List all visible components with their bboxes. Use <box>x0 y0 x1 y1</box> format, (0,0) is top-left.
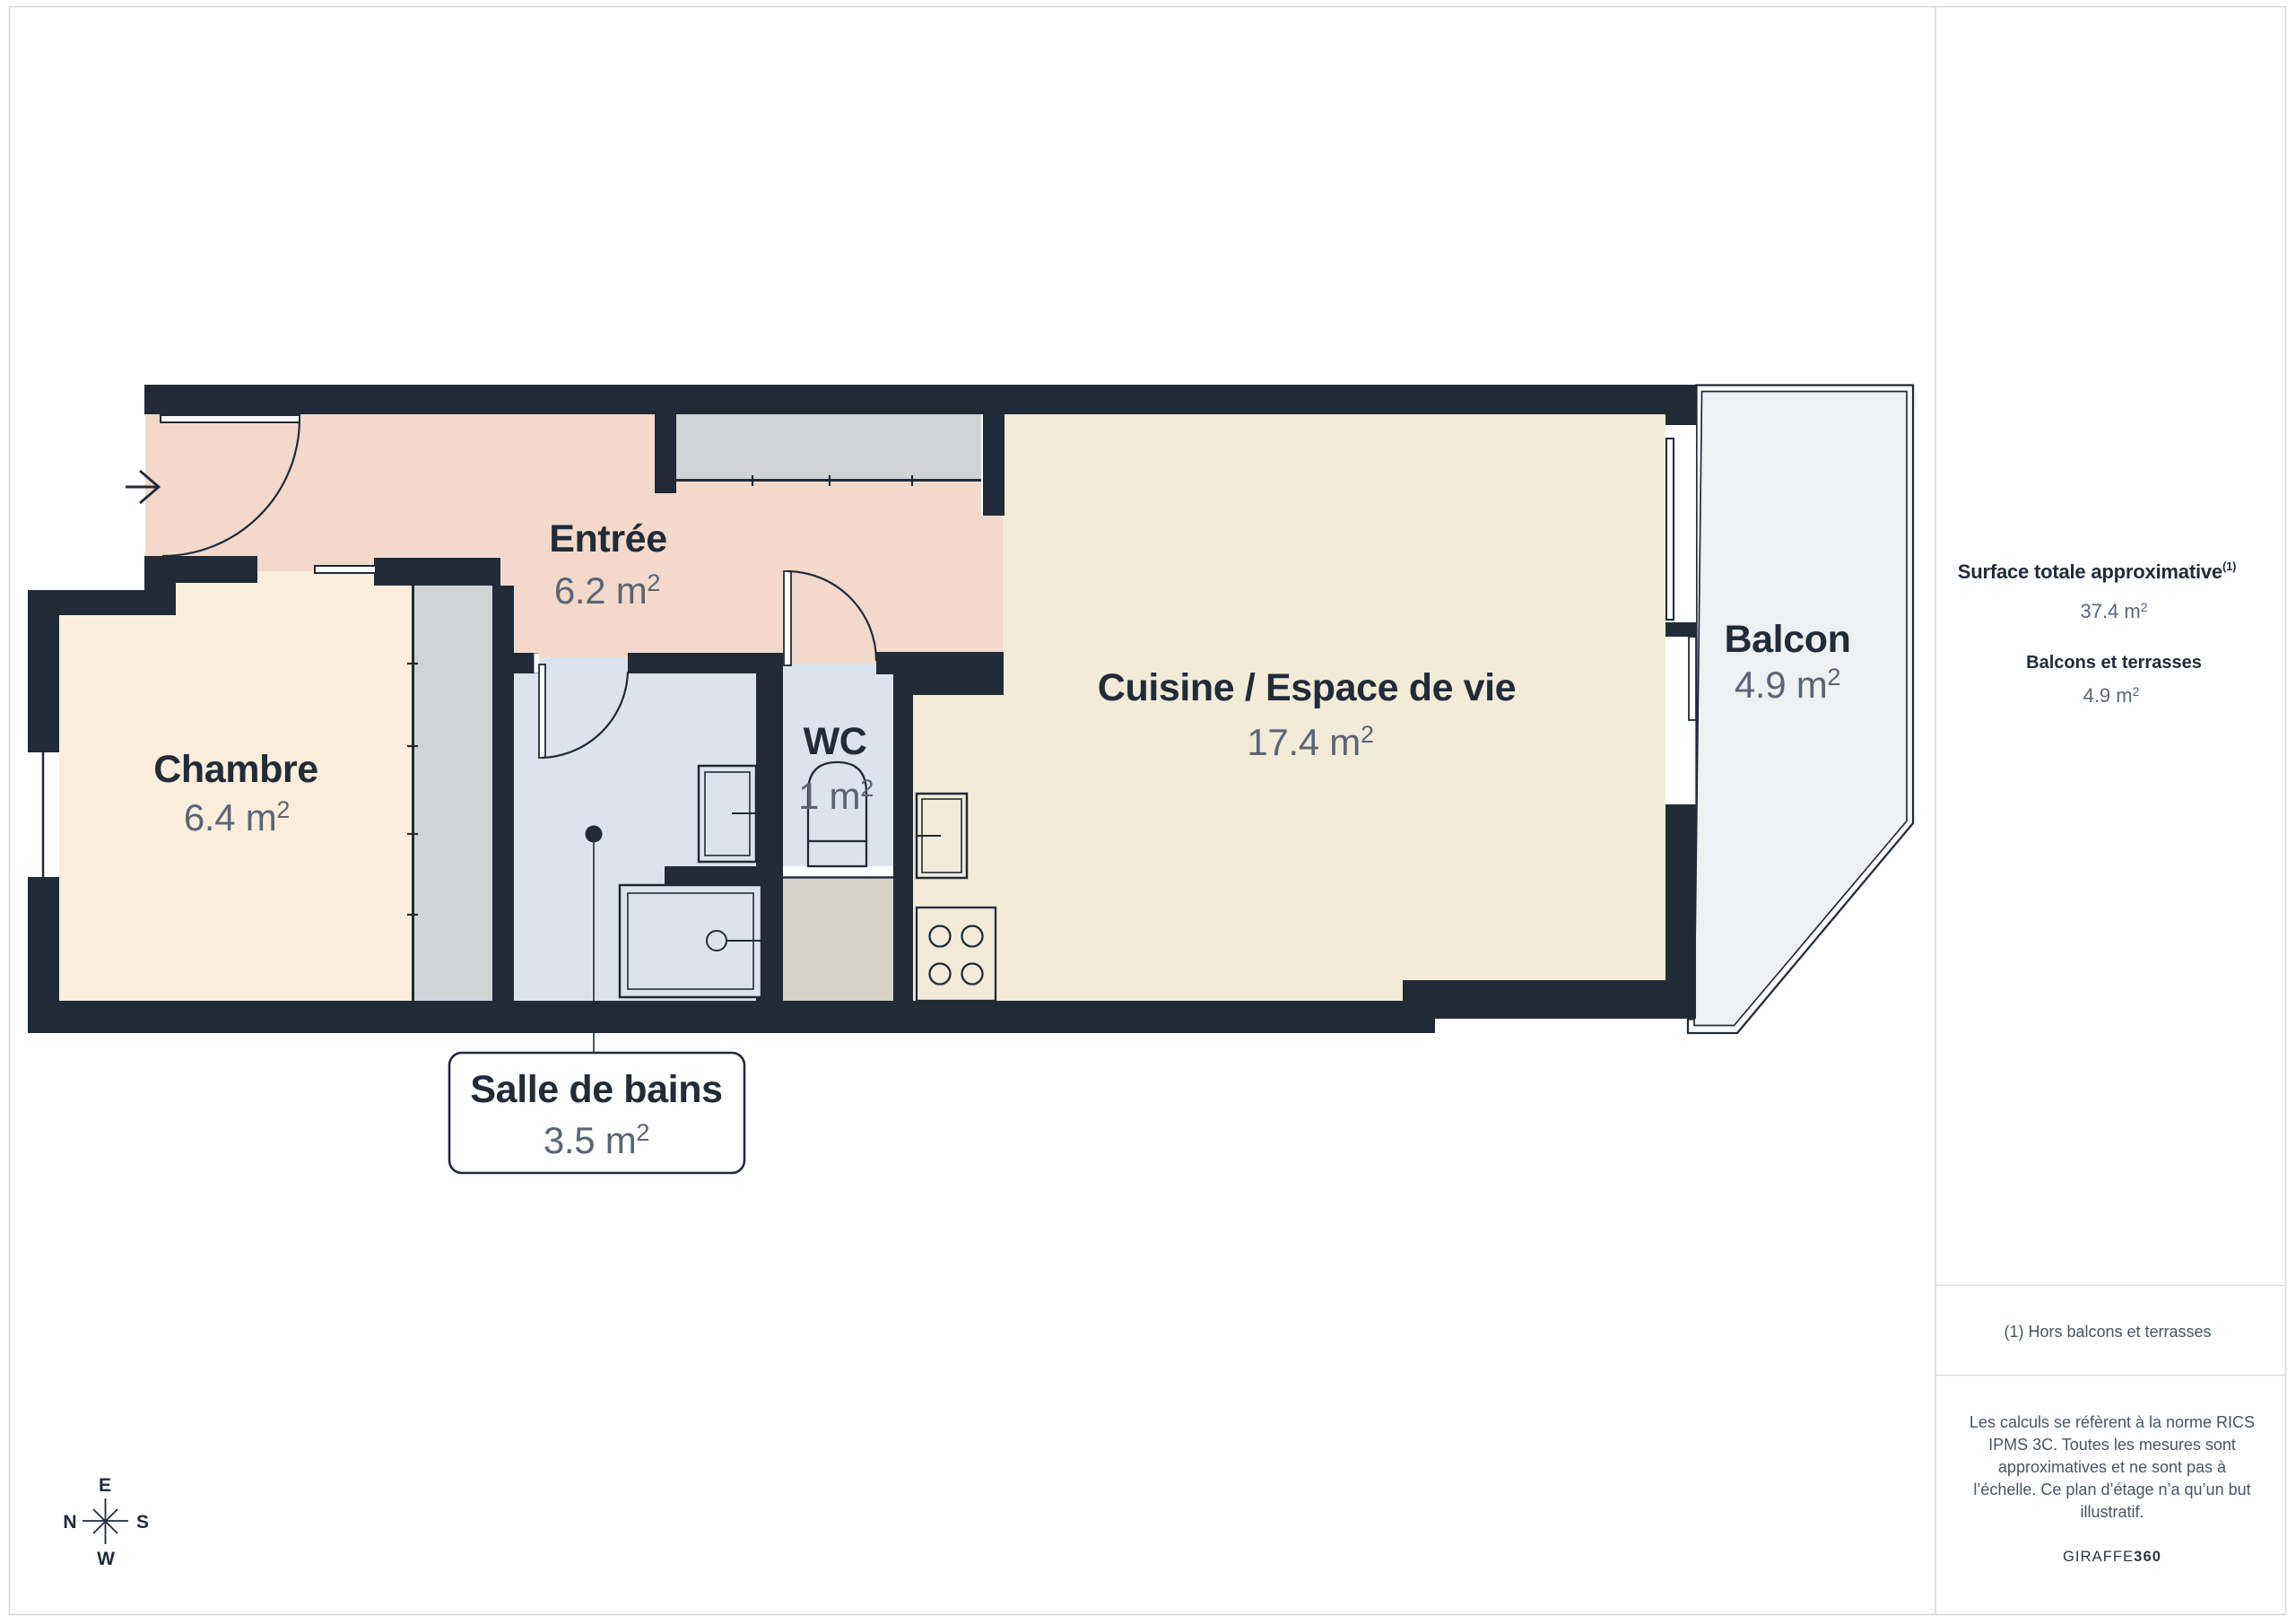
svg-text:approximatives et ne sont pas: approximatives et ne sont pas à <box>1998 1458 2227 1476</box>
svg-text:4.9 m2: 4.9 m2 <box>2083 684 2140 707</box>
svg-text:W: W <box>97 1549 115 1569</box>
svg-text:37.4 m2: 37.4 m2 <box>2080 600 2147 622</box>
svg-text:l’échelle. Ce plan d’étage n’a: l’échelle. Ce plan d’étage n’a qu’un but <box>1973 1481 2250 1498</box>
svg-text:6.2 m2: 6.2 m2 <box>554 569 660 612</box>
svg-text:Les calculs se réfèrent à la n: Les calculs se réfèrent à la norme RICS <box>1970 1413 2255 1431</box>
svg-text:S: S <box>136 1512 149 1533</box>
svg-text:Salle de bains: Salle de bains <box>470 1068 722 1111</box>
svg-text:Balcons et terrasses: Balcons et terrasses <box>2026 653 2202 673</box>
svg-text:illustratif.: illustratif. <box>2080 1503 2144 1521</box>
svg-text:N: N <box>63 1512 76 1533</box>
svg-text:4.9 m2: 4.9 m2 <box>1735 664 1840 706</box>
svg-text:Entrée: Entrée <box>549 517 666 560</box>
svg-text:(1) Hors balcons et terrasses: (1) Hors balcons et terrasses <box>2004 1323 2211 1341</box>
svg-text:Cuisine / Espace de vie: Cuisine / Espace de vie <box>1098 666 1516 709</box>
svg-text:WC: WC <box>804 720 867 763</box>
svg-text:Chambre: Chambre <box>153 748 318 791</box>
svg-text:6.4 m2: 6.4 m2 <box>184 796 290 838</box>
svg-text:IPMS 3C. Toutes les mesures so: IPMS 3C. Toutes les mesures sont <box>1988 1436 2236 1454</box>
svg-text:Balcon: Balcon <box>1725 618 1851 661</box>
svg-text:3.5 m2: 3.5 m2 <box>544 1119 649 1161</box>
svg-text:E: E <box>99 1475 111 1496</box>
svg-text:GIRAFFE360: GIRAFFE360 <box>2063 1549 2161 1565</box>
svg-text:Surface totale approximative(1: Surface totale approximative(1) <box>1958 560 2236 583</box>
svg-text:17.4 m2: 17.4 m2 <box>1247 721 1373 763</box>
